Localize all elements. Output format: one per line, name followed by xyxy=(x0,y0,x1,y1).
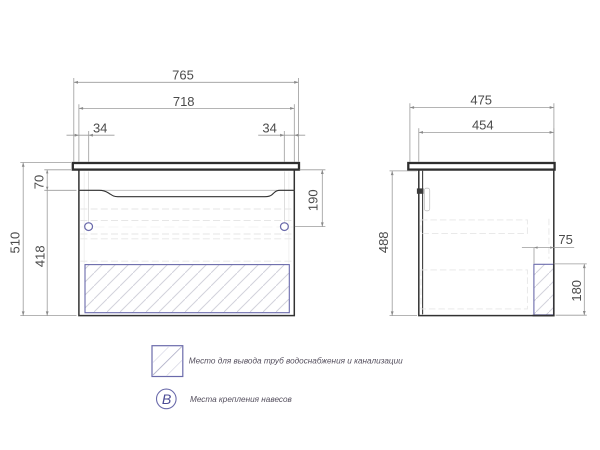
svg-text:Место для вывода труб водоснаб: Место для вывода труб водоснабжения и ка… xyxy=(189,357,403,366)
svg-text:454: 454 xyxy=(472,117,494,132)
svg-text:В: В xyxy=(162,392,171,408)
svg-text:510: 510 xyxy=(7,232,22,254)
svg-text:70: 70 xyxy=(32,175,47,189)
svg-text:190: 190 xyxy=(305,189,320,211)
svg-text:34: 34 xyxy=(93,120,107,135)
svg-text:765: 765 xyxy=(172,67,194,82)
svg-text:180: 180 xyxy=(569,280,584,302)
svg-text:475: 475 xyxy=(470,93,492,108)
svg-text:418: 418 xyxy=(32,245,47,267)
svg-text:75: 75 xyxy=(558,232,572,247)
svg-text:Места крепления навесов: Места крепления навесов xyxy=(190,395,293,404)
svg-text:34: 34 xyxy=(262,120,276,135)
svg-text:488: 488 xyxy=(376,231,391,253)
svg-text:718: 718 xyxy=(173,94,195,109)
